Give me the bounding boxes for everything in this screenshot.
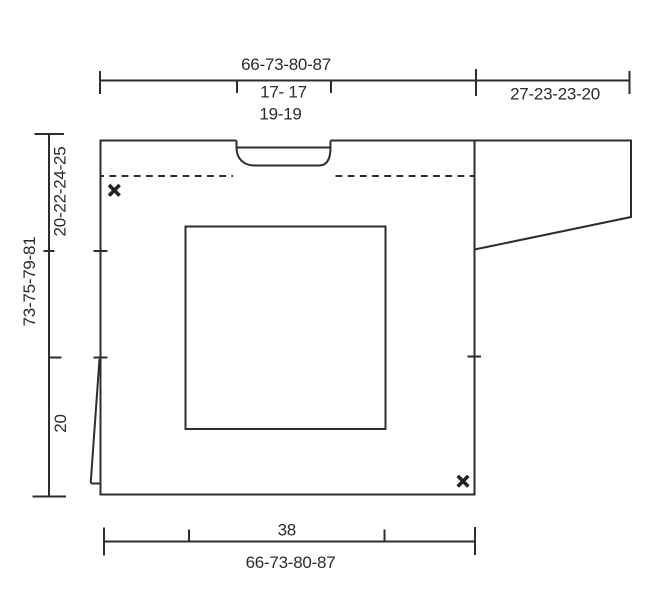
svg-text:66-73-80-87: 66-73-80-87 <box>241 55 331 74</box>
svg-text:27-23-23-20: 27-23-23-20 <box>510 85 600 104</box>
svg-text:38: 38 <box>278 521 296 540</box>
svg-text:17- 17: 17- 17 <box>260 83 307 102</box>
svg-text:20: 20 <box>51 414 70 432</box>
svg-text:20-22-24-25: 20-22-24-25 <box>50 147 69 237</box>
svg-text:73-75-79-81: 73-75-79-81 <box>20 237 39 327</box>
svg-text:19-19: 19-19 <box>259 105 301 124</box>
svg-text:66-73-80-87: 66-73-80-87 <box>246 553 336 572</box>
